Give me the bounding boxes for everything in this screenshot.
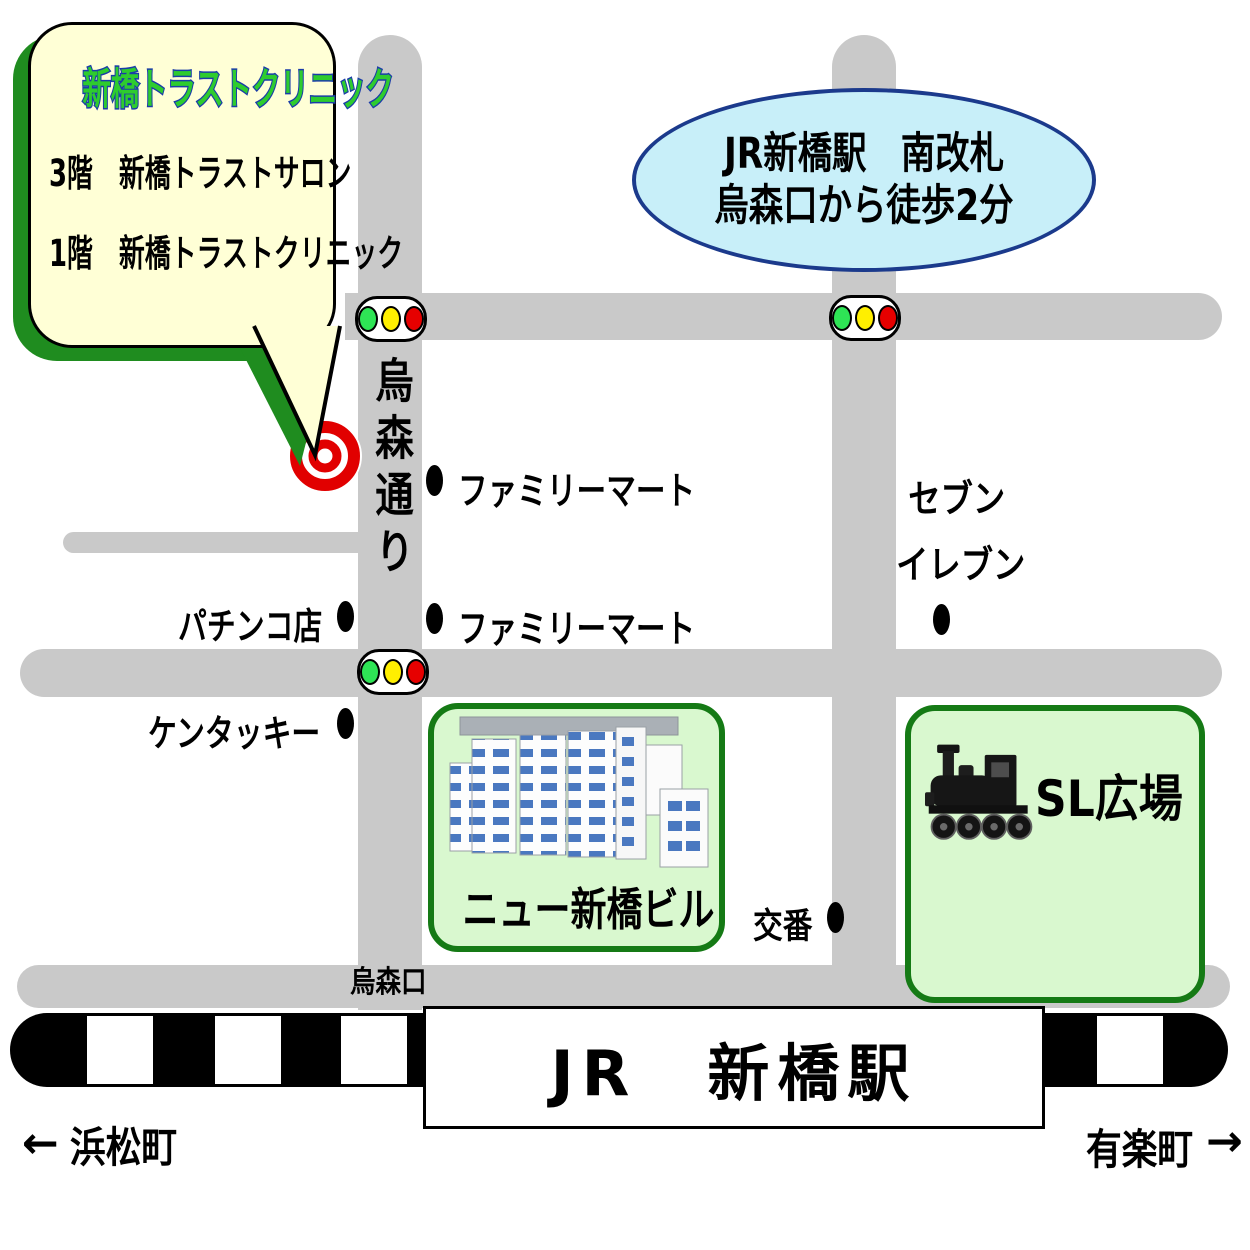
new-shimbashi-building-label: ニュー新橋ビル: [463, 873, 691, 938]
familymart-marker-dot: [426, 465, 443, 496]
familymart-marker-dot: [426, 603, 443, 634]
signal-green-icon: [360, 659, 380, 685]
signal-yellow-icon: [381, 306, 401, 332]
route-map: 烏森通り ファミリーマート ファミリーマート パチンコ店 ケンタッキー セブン …: [0, 0, 1250, 1250]
road-middle-horizontal: [20, 649, 1222, 697]
clinic-name: 新橋トラストクリニック: [82, 55, 281, 117]
signal-red-icon: [404, 306, 424, 332]
kentucky-marker-dot: [337, 708, 354, 739]
station-access-line1: JR新橋駅 南改札: [724, 128, 1004, 180]
west-arrow-icon: ←: [22, 1118, 59, 1169]
traffic-light-icon: [357, 649, 429, 695]
signal-green-icon: [358, 306, 378, 332]
road-left-side-street: [63, 532, 383, 553]
seven-eleven-label: セブン: [908, 468, 1002, 523]
jr-shimbashi-station-box: JR 新橋駅: [423, 1006, 1045, 1129]
bubble-tail-shadow: [240, 348, 330, 466]
signal-green-icon: [832, 305, 852, 331]
railway-tie: [1094, 1013, 1166, 1087]
signal-red-icon: [406, 659, 426, 685]
railway-tie: [84, 1013, 156, 1087]
signal-yellow-icon: [855, 305, 875, 331]
koban-marker-dot: [827, 902, 844, 933]
sl-plaza-box: SL広場: [905, 705, 1205, 1003]
signal-red-icon: [878, 305, 898, 331]
signal-yellow-icon: [383, 659, 403, 685]
target-marker-icon: [288, 419, 362, 493]
railway-tie: [212, 1013, 284, 1087]
kentucky-label: ケンタッキー: [148, 703, 320, 757]
east-arrow-icon: →: [1206, 1116, 1243, 1167]
hamamatsucho-label: 浜松町: [70, 1114, 177, 1175]
familymart-label: ファミリーマート: [458, 598, 695, 653]
clinic-floor3-line: 3階 新橋トラストサロン: [49, 143, 248, 197]
seven-eleven-marker-dot: [933, 604, 950, 635]
clinic-floor1-line: 1階 新橋トラストクリニック: [49, 223, 248, 277]
traffic-light-icon: [355, 296, 427, 342]
traffic-light-icon: [829, 295, 901, 341]
new-shimbashi-building-box: ニュー新橋ビル: [428, 703, 725, 952]
sl-plaza-label: SL広場: [1035, 759, 1183, 831]
building-illustration: [442, 711, 710, 879]
pachinko-label: パチンコ店: [178, 596, 322, 650]
road-top-horizontal: [345, 293, 1222, 340]
familymart-label: ファミリーマート: [458, 460, 695, 515]
jr-shimbashi-station-label: JR 新橋駅: [551, 1023, 918, 1113]
station-access-note: JR新橋駅 南改札 烏森口から徒歩2分: [632, 88, 1096, 272]
station-access-line2: 烏森口から徒歩2分: [714, 180, 1013, 232]
locomotive-icon: [925, 739, 1037, 851]
yurakucho-label: 有楽町: [1086, 1116, 1193, 1177]
koban-label: 交番: [753, 898, 813, 949]
seven-eleven-label: イレブン: [896, 534, 1011, 589]
railway-tie: [338, 1013, 410, 1087]
clinic-callout-bubble: 新橋トラストクリニック 3階 新橋トラストサロン 1階 新橋トラストクリニック: [28, 22, 336, 348]
pachinko-marker-dot: [337, 601, 354, 632]
karasumori-exit-label: 烏森口: [350, 957, 427, 1001]
street-name-karasumori-dori: 烏森通り: [365, 356, 414, 584]
